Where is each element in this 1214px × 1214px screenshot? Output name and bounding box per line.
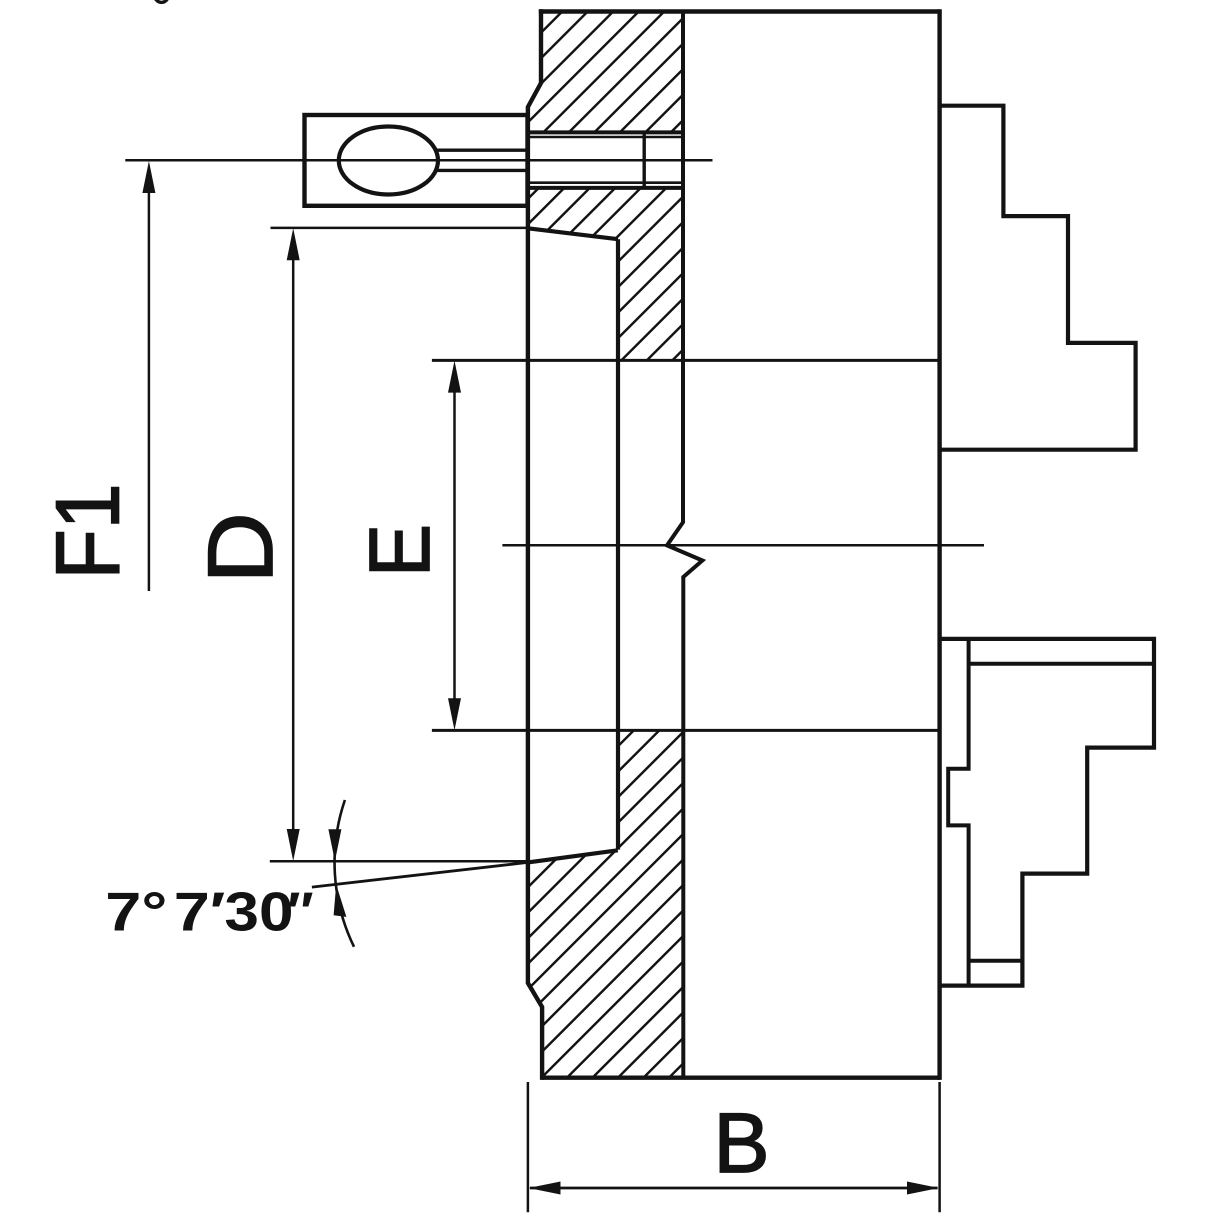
svg-text:30: 30 — [224, 882, 293, 943]
svg-text:E: E — [353, 524, 448, 577]
svg-text:B: B — [713, 1096, 769, 1190]
svg-text:7′: 7′ — [174, 881, 226, 942]
svg-text:D: D — [190, 512, 292, 583]
svg-text:F1: F1 — [39, 484, 139, 580]
svg-text:″: ″ — [287, 881, 313, 943]
svg-text:7°: 7° — [105, 881, 167, 942]
